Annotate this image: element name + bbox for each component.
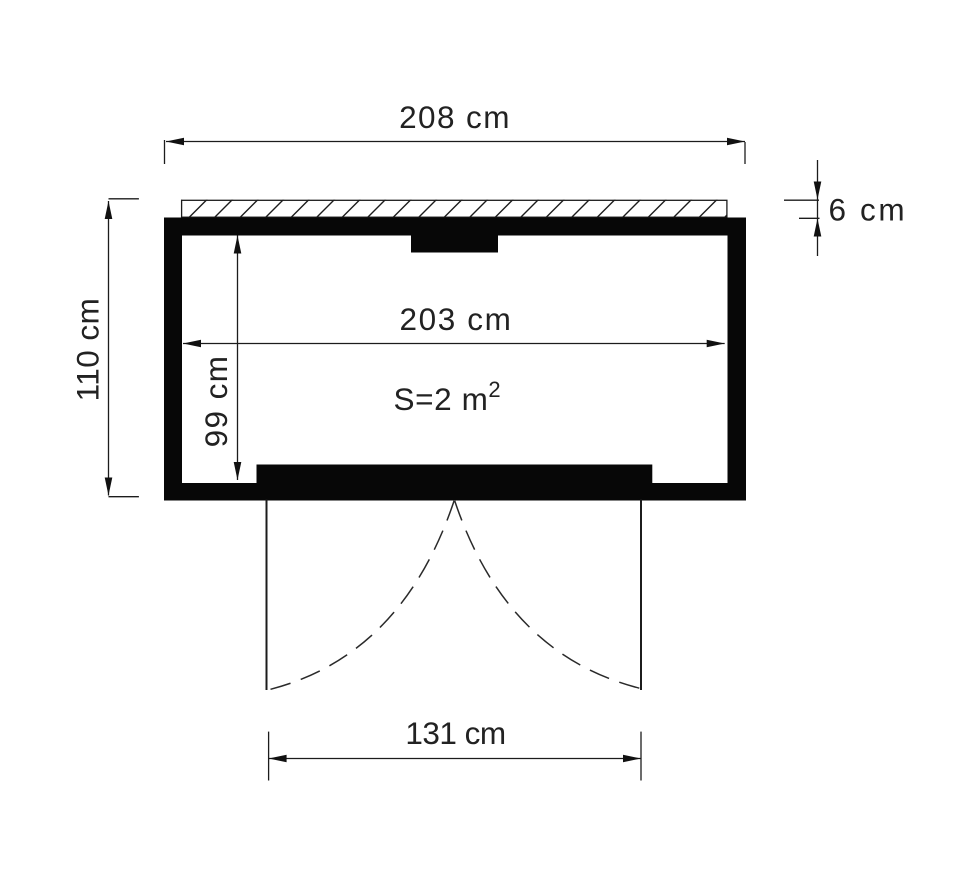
svg-text:6 cm: 6 cm — [829, 192, 908, 228]
svg-text:99 cm: 99 cm — [198, 355, 234, 448]
svg-text:208 cm: 208 cm — [399, 99, 511, 135]
svg-text:S=2 m2: S=2 m2 — [394, 377, 502, 417]
svg-text:131 cm: 131 cm — [405, 715, 505, 751]
svg-text:110 cm: 110 cm — [69, 298, 105, 402]
svg-text:203 cm: 203 cm — [400, 301, 513, 337]
